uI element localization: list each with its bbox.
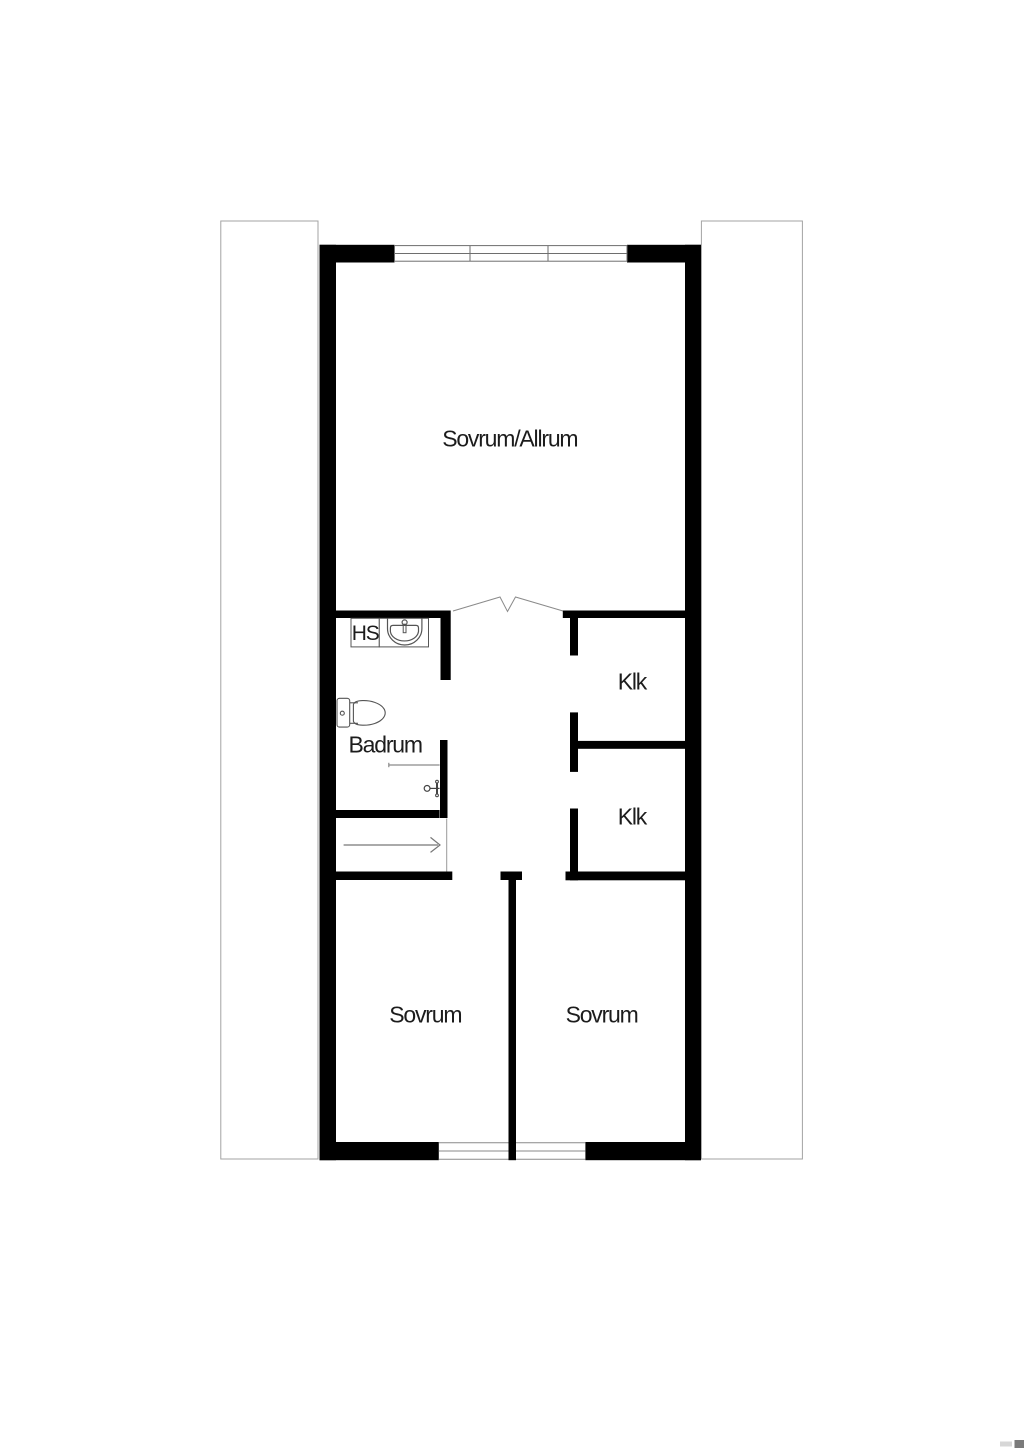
svg-text:Sovrum/Allrum: Sovrum/Allrum: [442, 426, 577, 452]
svg-text:Sovrum: Sovrum: [566, 1001, 638, 1027]
svg-text:Badrum: Badrum: [349, 731, 422, 757]
svg-text:Sovrum: Sovrum: [389, 1001, 461, 1027]
svg-text:Klk: Klk: [618, 669, 648, 695]
svg-text:Klk: Klk: [618, 803, 648, 829]
svg-text:HS: HS: [352, 622, 380, 645]
